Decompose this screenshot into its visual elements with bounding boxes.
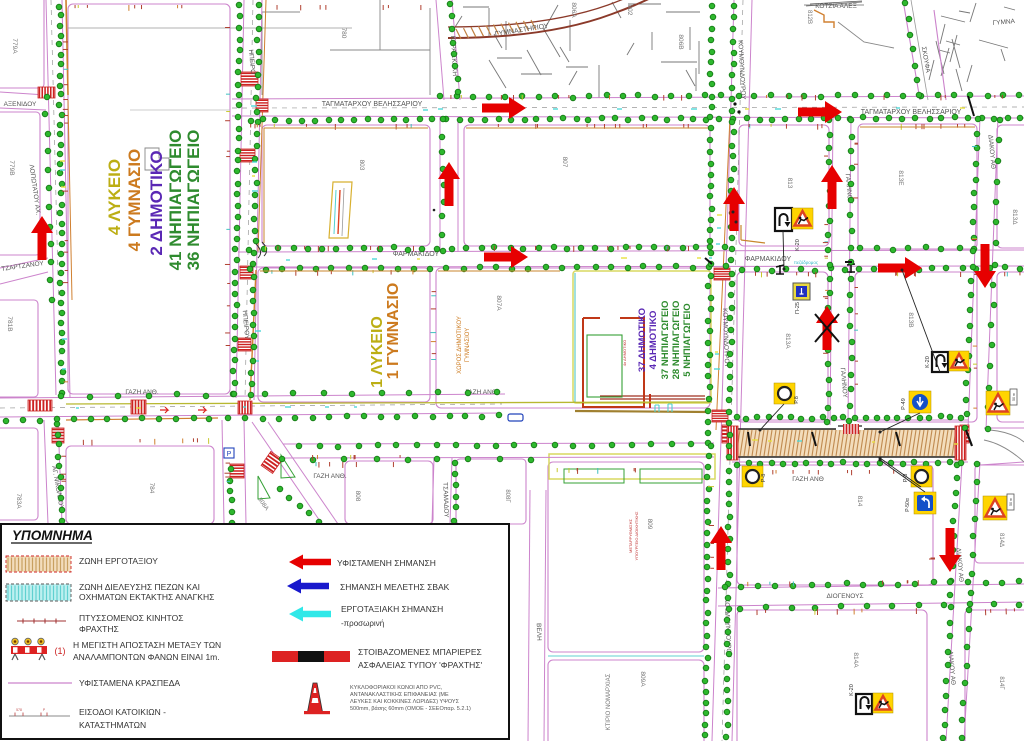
svg-text:4 ΛΥΚΕΙΟ: 4 ΛΥΚΕΙΟ (105, 159, 124, 235)
svg-text:ΥΠΟΜΝΗΜΑ: ΥΠΟΜΝΗΜΑ (12, 528, 93, 543)
svg-text:ΚΥΚΛΟΦΟΡΙΑΚΟΙ ΚΩΝΟΙ ΑΠΟ PVC,: ΚΥΚΛΟΦΟΡΙΑΚΟΙ ΚΩΝΟΙ ΑΠΟ PVC, (350, 685, 443, 691)
svg-text:808: 808 (354, 491, 361, 502)
svg-text:814Α: 814Α (852, 652, 859, 668)
svg-text:ΕΙΣΟΔΟΙ ΚΑΤΟΙΚΙΩΝ -: ΕΙΣΟΔΟΙ ΚΑΤΟΙΚΙΩΝ - (79, 707, 166, 717)
svg-text:814: 814 (856, 496, 863, 507)
svg-text:ΛΕΥΚΕΣ ΚΑΙ ΚΟΚΚΙΝΕΣ ΛΩΡΙΔΕΣ) Υ: ΛΕΥΚΕΣ ΚΑΙ ΚΟΚΚΙΝΕΣ ΛΩΡΙΔΕΣ) ΥΨΟΥΣ (350, 699, 460, 705)
svg-text:813Δ: 813Δ (1011, 209, 1018, 225)
svg-text:Ρ-8: Ρ-8 (761, 474, 767, 483)
svg-text:37 ΝΗΠΙΑΓΩΓΕΙΟ: 37 ΝΗΠΙΑΓΩΓΕΙΟ (660, 301, 671, 380)
svg-text:ΥΦΙΣΤΑΜΕΝΑ ΚΡΑΣΠΕΔΑ: ΥΦΙΣΤΑΜΕΝΑ ΚΡΑΣΠΕΔΑ (79, 678, 180, 688)
svg-text:500mm, βάσης 60mm (ΟΜΟΕ - ΣΕΕΟ: 500mm, βάσης 60mm (ΟΜΟΕ - ΣΕΕΟπαρ. 5.2.1… (350, 705, 471, 712)
svg-text:(1): (1) (55, 646, 66, 656)
svg-text:ΥΦΙΣΤΑΜΕΝΗ ΣΗΜΑΝΣΗ: ΥΦΙΣΤΑΜΕΝΗ ΣΗΜΑΝΣΗ (337, 558, 436, 568)
svg-text:36 ΝΗΠΙΑΓΩΓΕΙΟ: 36 ΝΗΠΙΑΓΩΓΕΙΟ (184, 130, 203, 271)
svg-text:807: 807 (561, 157, 568, 168)
svg-text:813: 813 (786, 178, 793, 189)
svg-text:Ρ-49: Ρ-49 (901, 398, 907, 410)
svg-text:4 ΓΥΜΝΑΣΙΟ: 4 ΓΥΜΝΑΣΙΟ (125, 149, 144, 252)
svg-text:ΓΑΖΗ ΑΝΘ.: ΓΑΖΗ ΑΝΘ. (313, 473, 347, 480)
svg-text:ΖΩΝΗ ΕΡΓΟΤΑΞΙΟΥ: ΖΩΝΗ ΕΡΓΟΤΑΞΙΟΥ (79, 556, 158, 566)
svg-text:784: 784 (148, 483, 155, 494)
svg-text:1 ΛΥΚΕΙΟ: 1 ΛΥΚΕΙΟ (369, 316, 386, 388)
svg-text:ΤΣΑΜΑΔΟΥ: ΤΣΑΜΑΔΟΥ (441, 482, 449, 518)
svg-text:Π-25: Π-25 (795, 302, 801, 314)
svg-text:783Α: 783Α (15, 493, 22, 509)
svg-text:50 m: 50 m (1009, 498, 1013, 506)
svg-text:5 ΝΗΠΙΑΓΩΓΕΙΟ: 5 ΝΗΠΙΑΓΩΓΕΙΟ (682, 303, 693, 376)
svg-text:813Β: 813Β (907, 312, 914, 327)
svg-text:ΚΤΙΡΙΟ ΝΟΜΑΡΧΙΑΣ: ΚΤΙΡΙΟ ΝΟΜΑΡΧΙΑΣ (606, 673, 612, 730)
svg-text:808Γ: 808Γ (504, 489, 510, 503)
svg-text:814Γ: 814Γ (998, 676, 1004, 690)
svg-text:ΜΕΤΑΡΡΥΘΜΙΣΗΣ: ΜΕΤΑΡΡΥΘΜΙΣΗΣ (628, 518, 633, 553)
svg-text:ΓΑΖΗ ΑΝΘ: ΓΑΖΗ ΑΝΘ (792, 476, 824, 483)
svg-text:ΚΟΤΖΙΑ ΑΛΕΞ: ΚΟΤΖΙΑ ΑΛΕΞ (815, 3, 857, 10)
svg-text:ΓΑΖΗ ΑΝΘ.: ΓΑΖΗ ΑΝΘ. (125, 389, 159, 396)
svg-text:812Β: 812Β (806, 10, 812, 24)
svg-text:779A: 779A (11, 38, 18, 54)
svg-text:28 ΝΗΠΙΑΓΩΓΕΙΟ: 28 ΝΗΠΙΑΓΩΓΕΙΟ (671, 301, 682, 380)
svg-text:πεζόδρομος: πεζόδρομος (794, 259, 819, 265)
svg-text:ΚΑΤΑΣΤΗΜΑΤΩΝ: ΚΑΤΑΣΤΗΜΑΤΩΝ (79, 720, 146, 730)
svg-text:ΥΠΟΥΡΓΕΙΟ ΔΙΟΙΚΗΤΙΚΗΣ: ΥΠΟΥΡΓΕΙΟ ΔΙΟΙΚΗΤΙΚΗΣ (634, 511, 639, 561)
svg-text:ΑΞΕΝΙΔΟΥ: ΑΞΕΝΙΔΟΥ (4, 101, 37, 108)
svg-text:ΟΧΗΜΑΤΩΝ ΕΚΤΑΚΤΗΣ ΑΝΑΓΚΗΣ: ΟΧΗΜΑΤΩΝ ΕΚΤΑΚΤΗΣ ΑΝΑΓΚΗΣ (79, 592, 214, 602)
svg-text:813Ε: 813Ε (897, 170, 904, 186)
svg-text:803: 803 (358, 160, 365, 171)
svg-text:ΑΝΑΛΑΜΠΟΝΤΩΝ ΦΑΝΩΝ ΕΙΝΑΙ 1m.: ΑΝΑΛΑΜΠΟΝΤΩΝ ΦΑΝΩΝ ΕΙΝΑΙ 1m. (73, 652, 220, 662)
svg-text:780: 780 (340, 28, 347, 39)
svg-text:ΔΙΟΓΕΝΟΥΣ: ΔΙΟΓΕΝΟΥΣ (826, 593, 863, 600)
svg-text:4ο ΔΗΜΟΤΙΚΟ: 4ο ΔΗΜΟΤΙΚΟ (622, 340, 627, 367)
svg-text:ΦΡΑΧΤΗΣ: ΦΡΑΧΤΗΣ (79, 624, 119, 634)
svg-text:806Β: 806Β (677, 34, 684, 49)
svg-text:50 m: 50 m (1012, 393, 1016, 401)
svg-text:ΠΤΥΣΣΟΜΕΝΟΣ ΚΙΝΗΤΟΣ: ΠΤΥΣΣΟΜΕΝΟΣ ΚΙΝΗΤΟΣ (79, 613, 183, 623)
svg-text:41 ΝΗΠΙΑΓΩΓΕΙΟ: 41 ΝΗΠΙΑΓΩΓΕΙΟ (166, 130, 185, 271)
svg-text:ΤΑΓΜΑΤΑΡΧΟΥ ΒΕΛΗΣΣΑΡΙΟΥ: ΤΑΓΜΑΤΑΡΧΟΥ ΒΕΛΗΣΣΑΡΙΟΥ (322, 101, 423, 108)
svg-text:ΧΩΡΟΣ ΔΗΜΟΤΙΚΟΥ: ΧΩΡΟΣ ΔΗΜΟΤΙΚΟΥ (457, 316, 463, 374)
svg-text:ΑΝΤΑΝΑΚΛΑΣΤΙΚΗΣ ΕΠΙΦΑΝΕΙΑΣ (ΜΕ: ΑΝΤΑΝΑΚΛΑΣΤΙΚΗΣ ΕΠΙΦΑΝΕΙΑΣ (ΜΕ (350, 692, 449, 698)
svg-text:ΣΗΜΑΝΣΗ ΜΕΛΕΤΗΣ ΣΒΑΚ: ΣΗΜΑΝΣΗ ΜΕΛΕΤΗΣ ΣΒΑΚ (340, 582, 450, 592)
svg-text:ΓΥΜΝΑΣΙΟΥ: ΓΥΜΝΑΣΙΟΥ (465, 328, 471, 363)
svg-text:ΦΑΡΜΑΚΙΔΟΥ: ΦΑΡΜΑΚΙΔΟΥ (745, 256, 792, 263)
svg-text:809: 809 (646, 519, 653, 530)
svg-text:ΤΑΓΜΑΤΑΡΧΟΥ ΒΕΛΗΣΣΑΡΙΟΥ: ΤΑΓΜΑΤΑΡΧΟΥ ΒΕΛΗΣΣΑΡΙΟΥ (861, 109, 962, 116)
svg-text:781Β: 781Β (6, 316, 13, 331)
svg-text:ΕΡΓΟΤΑΞΙΑΚΗ ΣΗΜΑΝΣΗ: ΕΡΓΟΤΑΞΙΑΚΗ ΣΗΜΑΝΣΗ (341, 604, 443, 614)
svg-text:Κ-20: Κ-20 (795, 239, 801, 251)
svg-text:814Δ: 814Δ (998, 533, 1004, 547)
svg-text:Κ-20: Κ-20 (925, 356, 931, 368)
svg-text:ΑΣΦΑΛΕΙΑΣ ΤΥΠΟΥ 'ΦΡΑΧΤΗΣ': ΑΣΦΑΛΕΙΑΣ ΤΥΠΟΥ 'ΦΡΑΧΤΗΣ' (358, 660, 483, 670)
svg-text:809Α: 809Α (639, 671, 646, 687)
svg-text:578: 578 (16, 708, 22, 712)
svg-text:1 ΓΥΜΝΑΣΙΟ: 1 ΓΥΜΝΑΣΙΟ (385, 283, 402, 380)
svg-text:813Α: 813Α (784, 333, 791, 349)
svg-text:779B: 779B (8, 160, 15, 175)
svg-text:-προσωρινή: -προσωρινή (341, 619, 384, 628)
svg-text:Η ΜΕΓΙΣΤΗ ΑΠΟΣΤΑΣΗ ΜΕΤΑΞΥ ΤΩΝ: Η ΜΕΓΙΣΤΗ ΑΠΟΣΤΑΣΗ ΜΕΤΑΞΥ ΤΩΝ (73, 640, 221, 650)
svg-text:ΖΩΝΗ ΔΙΕΛΕΥΣΗΣ ΠΕΖΩΝ ΚΑΙ: ΖΩΝΗ ΔΙΕΛΕΥΣΗΣ ΠΕΖΩΝ ΚΑΙ (79, 582, 200, 592)
svg-text:Ρ-50α: Ρ-50α (905, 498, 911, 512)
svg-text:807Α: 807Α (495, 295, 502, 311)
svg-text:ΣΤΟΙΒΑΖΟΜΕΝΕΣ ΜΠΑΡΙΕΡΕΣ: ΣΤΟΙΒΑΖΟΜΕΝΕΣ ΜΠΑΡΙΕΡΕΣ (358, 647, 482, 657)
svg-text:ΦΑΡΜΑΚΙΔΟΥ: ΦΑΡΜΑΚΙΔΟΥ (393, 251, 440, 258)
svg-text:ΒΕΛΗ: ΒΕΛΗ (535, 623, 543, 641)
svg-text:806Α: 806Α (570, 2, 577, 18)
svg-text:2 ΔΗΜΟΤΙΚΟ: 2 ΔΗΜΟΤΙΚΟ (147, 150, 166, 255)
svg-text:Κ-20: Κ-20 (849, 684, 855, 696)
svg-text:P: P (227, 451, 232, 458)
svg-text:Ρ.8: Ρ.8 (794, 396, 800, 404)
svg-text:37 ΔΗΜΟΤΙΚΟ: 37 ΔΗΜΟΤΙΚΟ (637, 308, 648, 372)
svg-text:4 ΔΗΜΟΤΙΚΟ: 4 ΔΗΜΟΤΙΚΟ (648, 311, 659, 370)
svg-text:802: 802 (626, 5, 633, 16)
